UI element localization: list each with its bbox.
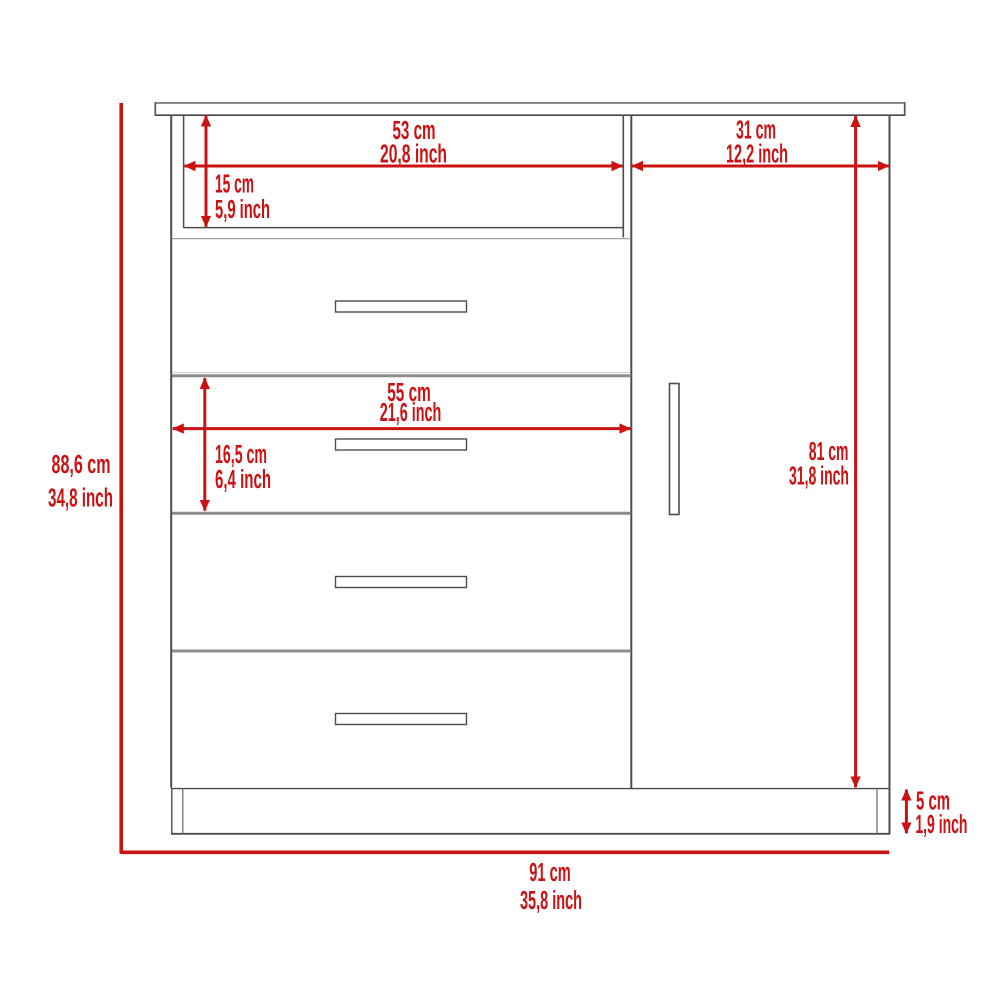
svg-text:6,4 inch: 6,4 inch: [215, 466, 271, 494]
svg-text:5,9 inch: 5,9 inch: [215, 196, 270, 224]
svg-text:34,8 inch: 34,8 inch: [48, 485, 113, 513]
svg-text:88,6 cm: 88,6 cm: [52, 451, 111, 479]
svg-text:35,8 inch: 35,8 inch: [520, 887, 582, 915]
svg-text:21,6 inch: 21,6 inch: [380, 399, 442, 427]
svg-text:12,2 inch: 12,2 inch: [726, 141, 788, 169]
svg-text:20,8 inch: 20,8 inch: [380, 141, 447, 169]
svg-text:16,5 cm: 16,5 cm: [215, 441, 267, 469]
svg-text:1,9 inch: 1,9 inch: [915, 811, 967, 839]
svg-text:31,8 inch: 31,8 inch: [789, 463, 849, 491]
svg-text:15 cm: 15 cm: [215, 171, 254, 199]
svg-text:91 cm: 91 cm: [529, 859, 570, 887]
